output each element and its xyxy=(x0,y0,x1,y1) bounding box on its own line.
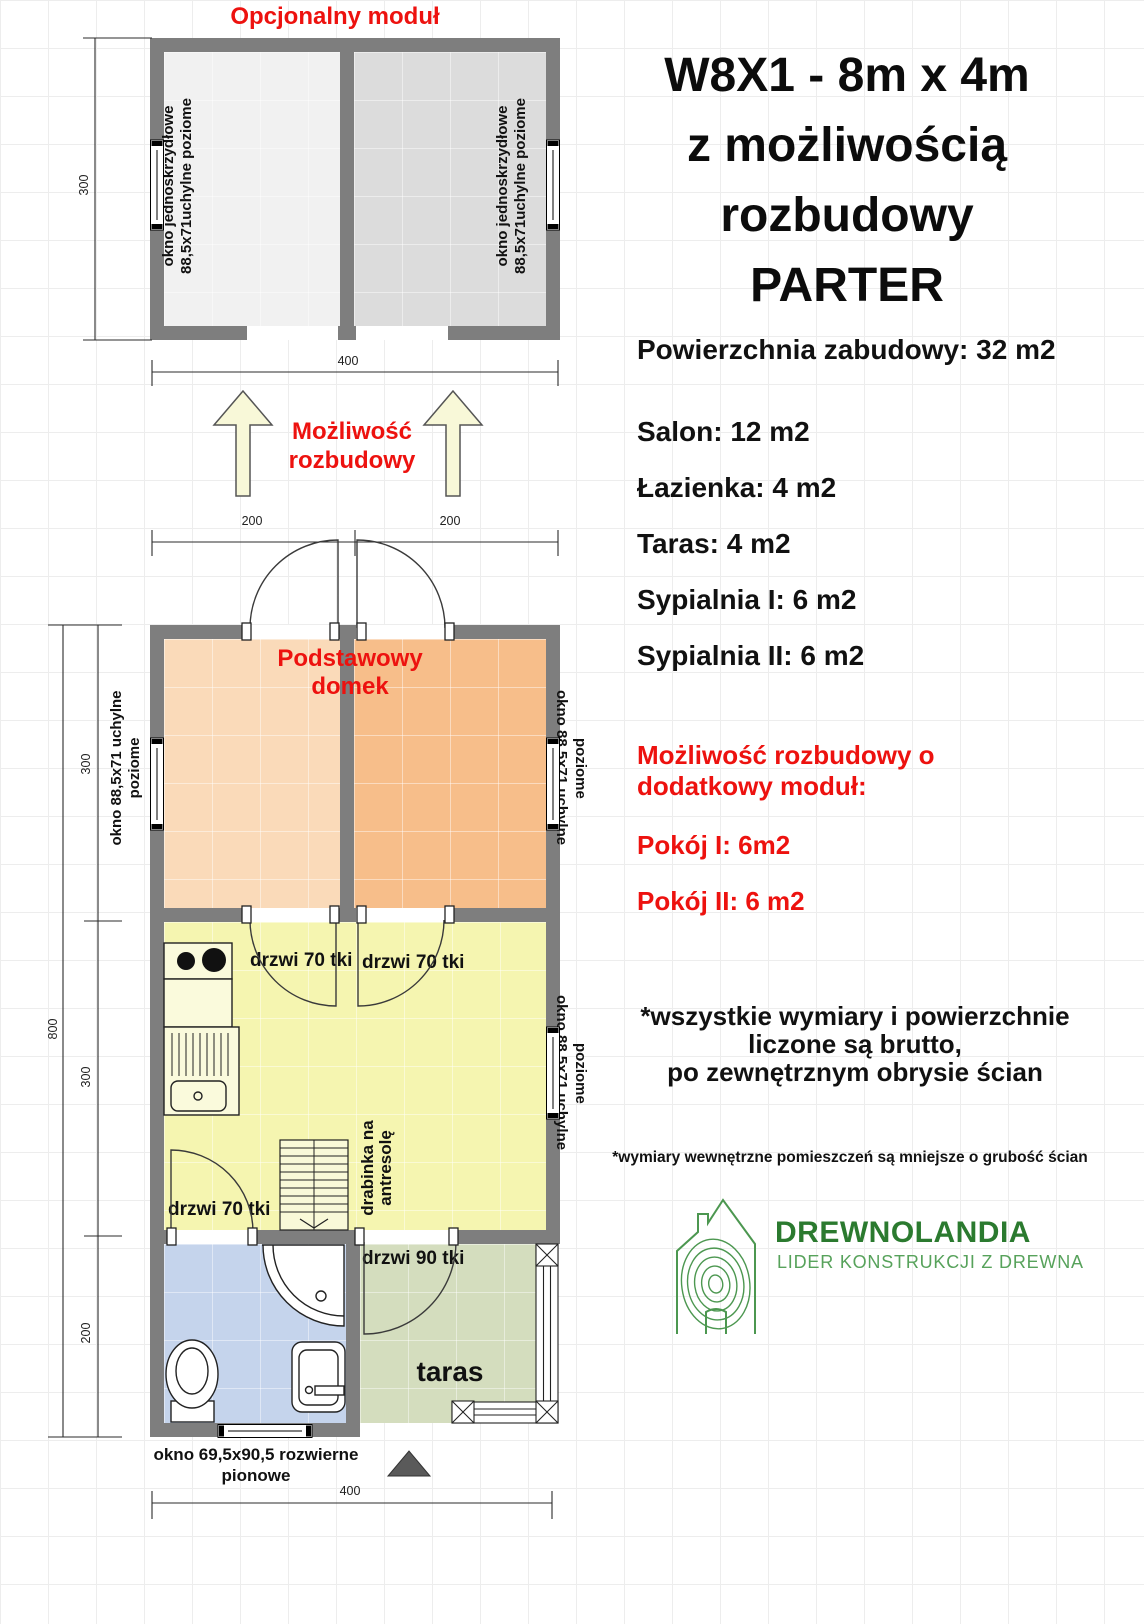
ladder-label: drabinka na antresolę xyxy=(359,1073,397,1263)
module-wall-center xyxy=(340,52,354,326)
small-note-line: *wymiary wewnętrzne pomieszczeń są mniej… xyxy=(612,1149,1088,1167)
bathroom-area xyxy=(164,1244,346,1423)
salon-bath-wall-1 xyxy=(150,1230,173,1244)
house-window-label-right-1: okno 88,5x71 uchylne poziome xyxy=(552,668,590,868)
room-area-taras: Taras: 4 m2 xyxy=(637,528,791,560)
salon-bath-wall-2 xyxy=(257,1230,362,1244)
window-label-line: okno jednoskrzydłowe xyxy=(160,86,178,286)
dim-house-total: 800 xyxy=(46,994,60,1064)
bedroom-salon-wall-stub xyxy=(338,908,356,922)
module-door-opening-left xyxy=(247,326,338,340)
window-label-line: okno 88,5x71 uchylne xyxy=(552,973,571,1173)
page-title-line: z możliwością xyxy=(664,111,1029,181)
expansion-note-line: Możliwość rozbudowy o xyxy=(637,740,935,771)
expansion-label: Możliwość rozbudowy xyxy=(262,414,442,478)
page-title: W8X1 - 8m x 4m z możliwością rozbudowy P… xyxy=(612,36,1082,326)
dim-house-salon: 300 xyxy=(79,1042,93,1112)
door-90-label: drzwi 90 tki xyxy=(362,1248,464,1270)
module-wall-bottom-stub xyxy=(338,326,356,340)
total-area-text: Powierzchnia zabudowy: 32 m2 xyxy=(637,334,1056,366)
house-wall-top-2 xyxy=(448,625,560,639)
optional-module-title: Opcjonalny moduł xyxy=(230,2,440,32)
dim-house-bath: 200 xyxy=(79,1298,93,1368)
window-label-line: okno 69,5x90,5 rozwierne xyxy=(153,1444,358,1465)
window-label-line: okno 88,5x71 uchylne xyxy=(108,668,126,868)
dim-200-left: 200 xyxy=(217,514,287,528)
door-70-label-1: drzwi 70 tki xyxy=(250,950,352,972)
bedroom2-door-opening xyxy=(356,908,448,922)
dim-module-height: 300 xyxy=(77,150,91,220)
window-label-line: okno 88,5x71 uchylne xyxy=(552,668,571,868)
floor-plan-page: Opcjonalny moduł okno jednoskrzydłowe 88… xyxy=(0,0,1144,1624)
room-area-salon: Salon: 12 m2 xyxy=(637,416,810,448)
window-label-line: poziome xyxy=(126,668,144,868)
disclaimer-line: liczone są brutto, xyxy=(640,1030,1069,1058)
room-area-lazienka: Łazienka: 4 m2 xyxy=(637,472,836,504)
page-title-line: rozbudowy xyxy=(664,181,1029,251)
house-wall-top-1 xyxy=(150,625,247,639)
module-wall-bottom-2 xyxy=(448,326,560,340)
salon-bath-wall-3 xyxy=(458,1230,560,1244)
bedroom-salon-wall-2 xyxy=(448,908,546,922)
main-house-title-line: domek xyxy=(277,673,422,701)
bedroom1-door-opening xyxy=(247,908,338,922)
page-title-line: W8X1 - 8m x 4m xyxy=(664,41,1029,111)
bath-terrace-wall xyxy=(346,1244,360,1423)
door-70-label-3: drzwi 70 tki xyxy=(168,1199,270,1221)
logo-house-icon xyxy=(668,1194,762,1336)
optional-module-title-text: Opcjonalny moduł xyxy=(230,3,439,31)
expansion-note: Możliwość rozbudowy o dodatkowy moduł: xyxy=(637,740,935,802)
door-70-label-2: drzwi 70 tki xyxy=(362,952,464,974)
dim-200-right: 200 xyxy=(415,514,485,528)
main-house-title: Podstawowy domek xyxy=(250,642,450,704)
terrace-label: taras xyxy=(400,1356,500,1388)
window-label-line: 88,5x71uchylne poziome xyxy=(178,86,196,286)
module-wall-bottom-1 xyxy=(150,326,247,340)
house-wall-top-stub xyxy=(338,625,356,639)
house-wall-left xyxy=(150,639,164,1423)
room-area-sypialnia-1: Sypialnia I: 6 m2 xyxy=(637,584,856,616)
dim-house-width: 400 xyxy=(315,1484,385,1498)
window-label-line: 88,5x71uchylne poziome xyxy=(512,86,530,286)
bedroom-salon-wall-1 xyxy=(164,908,247,922)
window-label-line: poziome xyxy=(571,973,590,1173)
expansion-label-line: Możliwość xyxy=(289,417,416,446)
dim-house-bedrooms: 300 xyxy=(79,729,93,799)
window-label-line: okno jednoskrzydłowe xyxy=(494,86,512,286)
ladder-label-line: drabinka na xyxy=(359,1073,377,1263)
main-house-title-line: Podstawowy xyxy=(277,645,422,673)
house-door-opening-top-right xyxy=(356,625,448,639)
disclaimer-line: po zewnętrznym obrysie ścian xyxy=(640,1058,1069,1086)
expansion-note-line: dodatkowy moduł: xyxy=(637,771,935,802)
window-label-line: poziome xyxy=(571,668,590,868)
room-area-sypialnia-2: Sypialnia II: 6 m2 xyxy=(637,640,864,672)
page-title-line: PARTER xyxy=(664,251,1029,321)
expansion-room-1: Pokój I: 6m2 xyxy=(637,830,790,861)
logo-name: DREWNOLANDIA xyxy=(775,1216,1031,1250)
terrace-label-text: taras xyxy=(417,1356,484,1388)
small-note-text: *wymiary wewnętrzne pomieszczeń są mniej… xyxy=(600,1146,1100,1170)
info-panel: W8X1 - 8m x 4m z możliwością rozbudowy P… xyxy=(600,0,1144,1624)
disclaimer-text: *wszystkie wymiary i powierzchnie liczon… xyxy=(620,1000,1090,1088)
house-door-opening-top-left xyxy=(247,625,338,639)
window-label-line: pionowe xyxy=(153,1465,358,1486)
house-window-label-left: okno 88,5x71 uchylne poziome xyxy=(108,668,144,868)
bathroom-door-opening xyxy=(173,1230,257,1244)
expansion-label-line: rozbudowy xyxy=(289,446,416,475)
salon-area xyxy=(164,922,546,1230)
house-wall-bottom xyxy=(150,1423,360,1437)
module-wall-right xyxy=(546,52,560,326)
expansion-room-2: Pokój II: 6 m2 xyxy=(637,886,805,917)
north-arrow-icon xyxy=(388,1451,430,1476)
module-window-label-left: okno jednoskrzydłowe 88,5x71uchylne pozi… xyxy=(160,86,196,286)
logo-tagline: LIDER KONSTRUKCJI Z DREWNA xyxy=(777,1252,1084,1273)
terrace-area xyxy=(360,1244,536,1423)
module-wall-top xyxy=(150,38,560,52)
house-window-label-right-2: okno 88,5x71 uchylne poziome xyxy=(552,973,590,1173)
bottom-window-label: okno 69,5x90,5 rozwierne pionowe xyxy=(136,1444,376,1486)
ladder-label-line: antresolę xyxy=(377,1073,395,1263)
dim-module-width: 400 xyxy=(313,354,383,368)
module-door-opening-right xyxy=(356,326,448,340)
module-window-label-right: okno jednoskrzydłowe 88,5x71uchylne pozi… xyxy=(494,86,530,286)
disclaimer-line: *wszystkie wymiary i powierzchnie xyxy=(640,1002,1069,1030)
